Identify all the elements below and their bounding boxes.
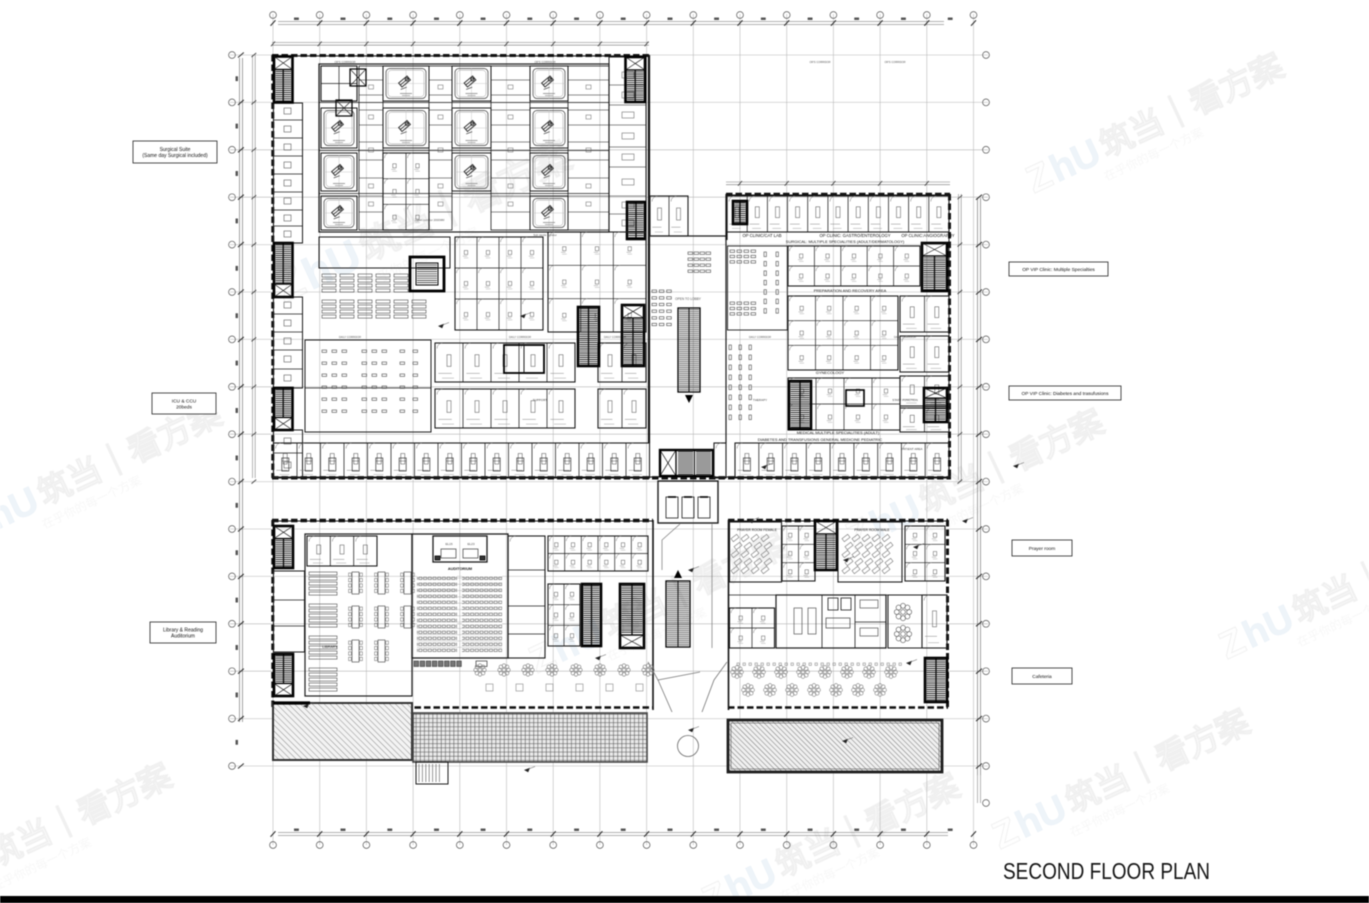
svg-text:Open corridor 2000MM: Open corridor 2000MM [416,218,445,222]
svg-text:OP VIP Clinic: Diabetes and tr: OP VIP Clinic: Diabetes and trasufusions [1021,391,1109,397]
svg-text:PREPARATION AND RECOVERY AREA: PREPARATION AND RECOVERY AREA [814,288,887,293]
svg-text:AUDITORIUM: AUDITORIUM [448,567,472,571]
svg-text:SECOND FLOOR PLAN: SECOND FLOOR PLAN [1003,858,1210,884]
svg-text:Auditorium: Auditorium [171,634,195,640]
svg-text:OP VIP Clinic: Multiple Specia: OP VIP Clinic: Multiple Specialties [1022,267,1095,273]
svg-text:Sub sterile corridor: Sub sterile corridor [533,233,557,237]
svg-text:STAFF FUNCTION: STAFF FUNCTION [892,398,918,402]
svg-text:OPEN TO LOBBY: OPEN TO LOBBY [675,297,702,301]
svg-text:EL23: EL23 [467,542,474,546]
svg-text:THERAPY: THERAPY [753,398,767,402]
svg-text:DAILY CORRIDOR: DAILY CORRIDOR [749,335,771,339]
svg-text:MEDICAL MULTIPLE SPECIALITIES: MEDICAL MULTIPLE SPECIALITIES (ADULT) [797,430,880,435]
svg-text:OP CLINIC:ANGIOGRAPHY: OP CLINIC:ANGIOGRAPHY [901,233,954,238]
svg-text:LIBRARY: LIBRARY [322,645,338,649]
svg-text:DAILY CORRIDOR: DAILY CORRIDOR [509,335,531,339]
svg-text:PRAYER ROOM FEMALE: PRAYER ROOM FEMALE [737,528,777,532]
svg-text:DIABETES AND TRANSFUSIONS GEN: DIABETES AND TRANSFUSIONS GENERAL MEDICI… [758,437,883,442]
svg-text:OR'S CORRIDOR: OR'S CORRIDOR [885,60,906,64]
svg-text:DAILY CORRIDOR: DAILY CORRIDOR [339,335,361,339]
svg-text:PATIENT AREA: PATIENT AREA [901,447,922,451]
svg-text:OP CLINIC: GASTRO/ENTEROLOGY: OP CLINIC: GASTRO/ENTEROLOGY [819,233,890,238]
svg-text:ICU & CCU: ICU & CCU [172,398,197,404]
svg-text:OR'S CORRIDOR: OR'S CORRIDOR [810,60,831,64]
svg-text:OR'S CORRIDOR: OR'S CORRIDOR [335,60,356,64]
svg-text:OP CLINIC/CAT LAB: OP CLINIC/CAT LAB [742,233,781,238]
svg-text:20beds: 20beds [176,405,192,411]
svg-text:Surgical Suite: Surgical Suite [160,147,191,153]
svg-text:OR'S CORRIDOR: OR'S CORRIDOR [535,60,556,64]
svg-text:SURGICAL: MULTIPLE SPECIALITIE: SURGICAL: MULTIPLE SPECIALITIES (ADULT/D… [786,239,905,244]
svg-text:EL15: EL15 [445,542,452,546]
svg-text:Cafeteria: Cafeteria [1032,674,1052,680]
svg-text:(Same day Surgical included): (Same day Surgical included) [142,153,208,159]
svg-text:Library & Reading: Library & Reading [163,627,203,633]
svg-text:GYNECOLOGY: GYNECOLOGY [816,370,845,375]
svg-text:PRAYER ROOM MALE: PRAYER ROOM MALE [854,528,890,532]
svg-text:Prayer room: Prayer room [1029,546,1055,552]
